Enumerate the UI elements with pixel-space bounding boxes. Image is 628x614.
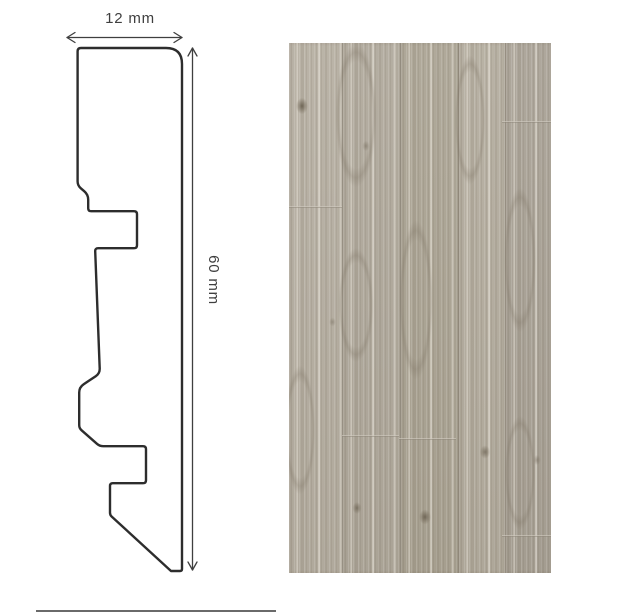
wood-knot: [294, 95, 310, 117]
plank-end-joint: [289, 206, 342, 208]
plank-end-joint: [342, 435, 399, 437]
wood-knot: [417, 507, 433, 527]
wood-knot: [532, 453, 542, 467]
width-dimension-arrow: [67, 33, 182, 43]
height-dimension-arrow: [188, 48, 197, 570]
wood-grain-arch: [394, 195, 438, 405]
wood-decor-swatch: [289, 43, 551, 573]
wood-grain-arch: [333, 230, 379, 380]
product-detail-section: 12 mm 60 mm: [0, 0, 628, 614]
plank-end-joint: [399, 438, 456, 440]
wood-grain-arch: [500, 398, 540, 548]
wood-grain-arch: [450, 43, 490, 205]
bottom-divider-line: [36, 610, 276, 612]
wood-grain-arch: [499, 165, 541, 355]
wood-knot: [361, 139, 371, 153]
skirting-profile-diagram: 12 mm 60 mm: [0, 0, 240, 614]
height-dimension-label: 60 mm: [205, 255, 222, 305]
plank-end-joint: [502, 121, 551, 123]
plank-end-joint: [502, 535, 551, 537]
wood-knot: [478, 443, 492, 461]
skirting-profile-outline: [78, 48, 182, 571]
wood-knot: [351, 500, 363, 516]
width-dimension-label: 12 mm: [105, 10, 155, 27]
wood-knot: [328, 316, 337, 328]
